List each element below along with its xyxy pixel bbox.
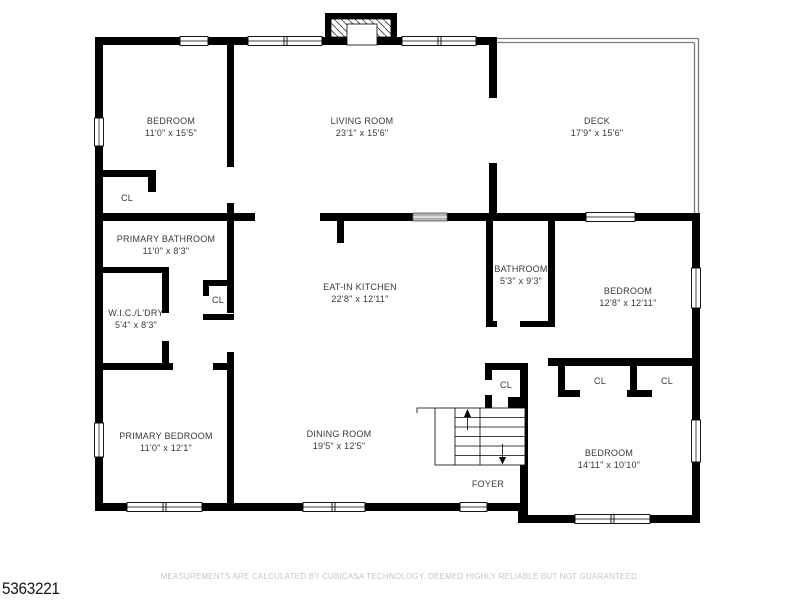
- room-dims: 5'4" x 8'3": [115, 320, 157, 332]
- measurement-disclaimer: MEASUREMENTS ARE CALCULATED BY CUBICASA …: [0, 572, 800, 581]
- room-label-primary-bedroom: PRIMARY BEDROOM 11'0" x 12'1": [119, 431, 212, 454]
- room-name: FOYER: [472, 479, 504, 491]
- floor-plan: BEDROOM 11'0" x 15'5" LIVING ROOM 23'1" …: [0, 0, 800, 600]
- closet-label-bedroom-left: CL: [594, 376, 606, 386]
- room-label-bedroom-upper-left: BEDROOM 11'0" x 15'5": [145, 116, 197, 139]
- room-name: BEDROOM: [585, 448, 633, 460]
- room-label-bedroom-right: BEDROOM 12'8" x 12'11": [599, 286, 656, 309]
- room-name: BATHROOM: [494, 264, 547, 276]
- room-label-primary-bathroom: PRIMARY BATHROOM 11'0" x 8'3": [117, 234, 216, 257]
- room-name: PRIMARY BATHROOM: [117, 234, 216, 246]
- room-label-bedroom-lower-right: BEDROOM 14'11" x 10'10": [578, 448, 640, 471]
- room-name: DECK: [584, 116, 610, 128]
- plan-id: 5363221: [2, 579, 60, 599]
- room-name: W.I.C./L'DRY: [108, 308, 164, 320]
- room-name: DINING ROOM: [307, 429, 372, 441]
- room-label-deck: DECK 17'9" x 15'6": [571, 116, 624, 139]
- room-label-living-room: LIVING ROOM 23'1" x 15'6": [331, 116, 394, 139]
- room-label-foyer: FOYER: [472, 479, 504, 491]
- room-dims: 11'0" x 15'5": [145, 128, 197, 140]
- room-dims: 11'0" x 8'3": [143, 246, 190, 258]
- room-name: LIVING ROOM: [331, 116, 394, 128]
- room-name: PRIMARY BEDROOM: [119, 431, 212, 443]
- room-dims: 5'3" x 9'3": [500, 276, 542, 288]
- room-label-dining-room: DINING ROOM 19'5" x 12'5": [307, 429, 372, 452]
- room-label-eat-in-kitchen: EAT-IN KITCHEN 22'8" x 12'11": [323, 282, 397, 305]
- room-dims: 12'8" x 12'11": [599, 298, 656, 310]
- floor-plan-svg: [0, 0, 800, 600]
- closet-label-hall: CL: [212, 295, 224, 305]
- room-dims: 22'8" x 12'11": [331, 294, 388, 306]
- room-name: BEDROOM: [604, 286, 652, 298]
- closet-label-foyer: CL: [500, 380, 512, 390]
- room-name: EAT-IN KITCHEN: [323, 282, 397, 294]
- room-name: BEDROOM: [147, 116, 195, 128]
- room-dims: 14'11" x 10'10": [578, 460, 640, 472]
- closet-label-bedroom-right: CL: [661, 376, 673, 386]
- room-dims: 19'5" x 12'5": [313, 441, 366, 453]
- room-dims: 23'1" x 15'6": [336, 128, 389, 140]
- room-dims: 11'0" x 12'1": [140, 443, 192, 455]
- closet-label-bedroom-upper-left: CL: [121, 193, 133, 203]
- room-label-bathroom: BATHROOM 5'3" x 9'3": [494, 264, 547, 287]
- staircase: [417, 408, 525, 465]
- room-dims: 17'9" x 15'6": [571, 128, 624, 140]
- room-label-wic-laundry: W.I.C./L'DRY 5'4" x 8'3": [108, 308, 164, 331]
